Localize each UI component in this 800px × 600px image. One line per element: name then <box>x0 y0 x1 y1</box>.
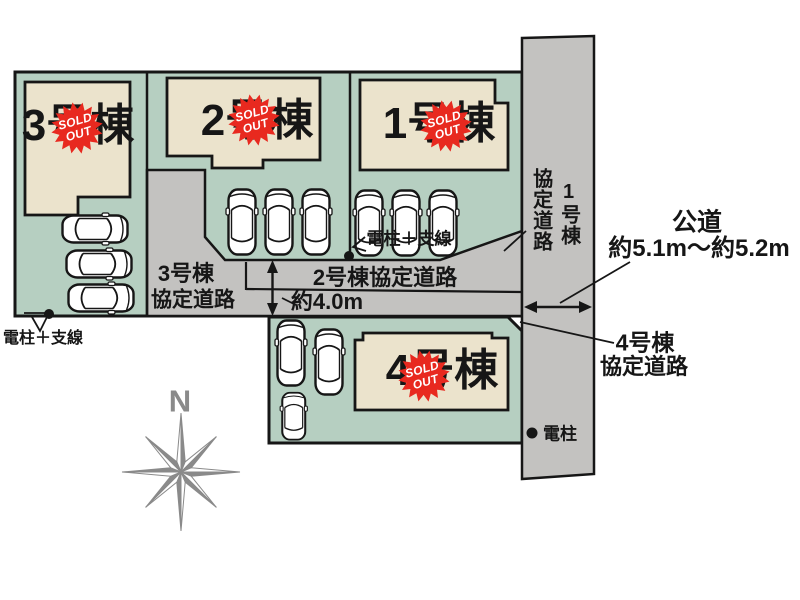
road4-label-line1: 4号棟 <box>616 332 675 355</box>
utility-pole-road <box>527 428 538 439</box>
road1-label-line1: 1号棟 <box>557 181 579 246</box>
road2-width-note: 約4.0m <box>291 291 363 313</box>
sold-out-badge-plot2: SOLDOUT <box>224 90 284 150</box>
pole-road-label: 電柱 <box>543 426 577 443</box>
car-icon <box>300 190 332 255</box>
site-plan-drawing <box>0 0 800 600</box>
site-plan: 3号棟 2号棟 1号棟 4号棟 3号棟 協定道路 2号棟協定道路 約4.0m 公… <box>0 0 800 600</box>
car-icon <box>280 393 307 440</box>
compass-rose-icon <box>122 413 240 531</box>
public-road-area <box>522 36 594 479</box>
car-icon <box>67 248 132 280</box>
public-road-width-note: 約5.1m〜約5.2m <box>608 237 789 261</box>
sold-out-badge-plot4: SOLDOUT <box>394 346 454 406</box>
sold-out-badge-plot1: SOLDOUT <box>416 96 476 156</box>
road2-label: 2号棟協定道路 <box>313 267 457 289</box>
public-road-name: 公道 <box>672 211 722 236</box>
utility-pole-guy-left <box>24 309 54 331</box>
car-icon <box>69 282 134 314</box>
car-icon <box>313 330 345 395</box>
car-icon <box>226 190 258 255</box>
road3-label-line2: 協定道路 <box>151 290 235 311</box>
car-icon <box>263 190 295 255</box>
car-icon <box>275 321 307 386</box>
car-icon <box>63 213 128 245</box>
road4-label-line2: 協定道路 <box>600 356 688 378</box>
road3-label-line1: 3号棟 <box>158 263 214 285</box>
sold-out-badge-plot3: SOLDOUT <box>47 98 107 158</box>
road1-label-line2: 協定道路 <box>529 168 551 252</box>
pole-guy-center-label: 電柱＋支線 <box>367 231 452 248</box>
compass-north-label: N <box>169 386 191 417</box>
pole-guy-left-label: 電柱＋支線 <box>3 331 83 347</box>
